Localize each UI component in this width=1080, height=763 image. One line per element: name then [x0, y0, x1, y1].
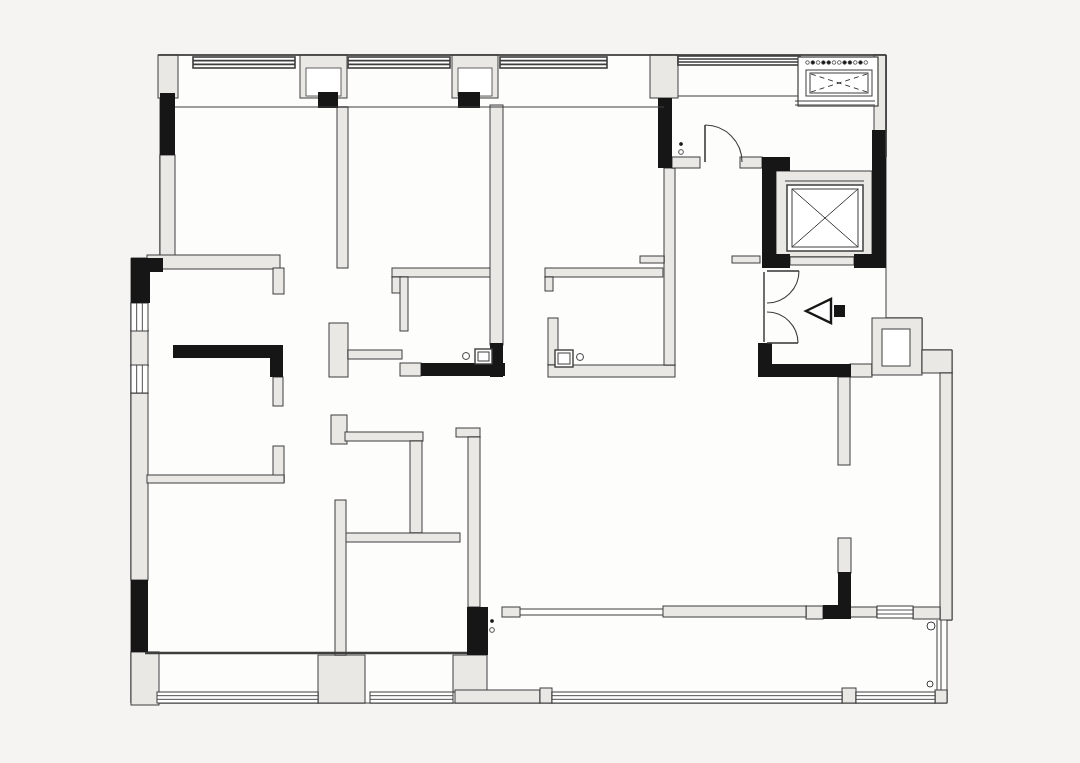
- wall: [345, 432, 423, 441]
- structural-wall: [872, 157, 886, 268]
- wall: [850, 607, 877, 617]
- wall: [838, 538, 851, 573]
- structural-wall: [823, 605, 851, 619]
- wall: [672, 157, 700, 168]
- window: [856, 692, 935, 703]
- structural-wall: [458, 92, 480, 108]
- vent-dot: [832, 61, 836, 65]
- wall: [131, 330, 148, 366]
- wall: [318, 655, 365, 703]
- window: [552, 692, 842, 703]
- wall: [740, 157, 762, 168]
- wall: [545, 277, 553, 291]
- wall: [502, 607, 520, 617]
- window: [193, 57, 295, 68]
- vent-dot: [848, 61, 852, 65]
- structural-wall: [173, 345, 283, 358]
- wall: [273, 268, 284, 294]
- wall: [329, 323, 348, 377]
- hinge-dot: [490, 619, 493, 622]
- window: [370, 692, 453, 703]
- wall: [935, 690, 947, 703]
- vent-dot: [864, 61, 868, 65]
- wall: [490, 105, 503, 345]
- vent-dot: [806, 61, 810, 65]
- wall: [838, 377, 850, 465]
- wall: [455, 690, 540, 703]
- wall: [850, 364, 872, 377]
- wall: [131, 652, 159, 705]
- vent-dot: [827, 61, 831, 65]
- hinge-dot: [679, 150, 684, 155]
- pier-inner-panel: [306, 68, 341, 96]
- wall: [160, 155, 175, 258]
- drain-circle: [463, 353, 470, 360]
- wall: [640, 256, 664, 263]
- wall: [664, 168, 675, 365]
- vent-dot: [816, 61, 820, 65]
- wall: [345, 533, 460, 542]
- wall: [806, 606, 823, 619]
- wall: [913, 607, 940, 619]
- wall: [453, 655, 487, 692]
- wall: [468, 437, 480, 607]
- wall: [392, 268, 492, 277]
- hinge-dot: [679, 142, 682, 145]
- structural-wall: [270, 345, 283, 377]
- window: [348, 57, 450, 68]
- entry-arrow-tail: [834, 305, 845, 317]
- window: [877, 606, 913, 618]
- window: [131, 365, 148, 393]
- wall: [540, 688, 552, 703]
- hinge-dot: [490, 628, 495, 633]
- wall: [400, 277, 408, 331]
- wall: [131, 393, 148, 580]
- vent-dot: [853, 61, 857, 65]
- window: [678, 56, 800, 65]
- window: [157, 692, 318, 703]
- wall: [410, 441, 422, 533]
- wall: [663, 606, 806, 617]
- vent-dot: [822, 61, 826, 65]
- structural-wall: [762, 254, 790, 268]
- structural-wall: [318, 92, 338, 108]
- structural-wall: [467, 607, 488, 655]
- structural-wall: [872, 130, 886, 158]
- structural-wall: [131, 258, 163, 272]
- wall: [335, 500, 346, 655]
- wall: [790, 257, 854, 265]
- entry-cabinet-inner: [882, 329, 910, 366]
- floor-plan-drawing: [0, 0, 1080, 763]
- drain-circle: [577, 354, 584, 361]
- vent-dot: [843, 61, 847, 65]
- drain-circle: [927, 681, 933, 687]
- wall: [147, 255, 280, 269]
- window: [500, 57, 607, 68]
- vent-dot: [838, 61, 842, 65]
- drain-circle: [927, 622, 935, 630]
- wall: [456, 428, 480, 437]
- wall: [400, 363, 421, 376]
- vent-dot: [811, 61, 815, 65]
- wall: [545, 268, 663, 277]
- structural-wall: [838, 572, 851, 607]
- structural-wall: [131, 580, 148, 652]
- wall: [650, 55, 678, 98]
- wall: [842, 688, 856, 703]
- wall: [732, 256, 760, 263]
- window: [131, 303, 148, 331]
- wall: [158, 55, 178, 98]
- structural-wall: [658, 98, 672, 168]
- wall: [922, 350, 952, 373]
- structural-wall: [762, 157, 776, 268]
- structural-wall: [160, 93, 175, 155]
- vent-dot: [859, 61, 863, 65]
- pier-inner-panel: [458, 68, 492, 96]
- wall: [348, 350, 402, 359]
- structural-wall: [758, 364, 851, 377]
- wall: [337, 107, 348, 268]
- wall: [940, 373, 952, 620]
- wall: [147, 475, 284, 483]
- wall: [273, 377, 283, 406]
- structural-wall: [854, 254, 886, 268]
- floor-plan-page: [0, 0, 1080, 763]
